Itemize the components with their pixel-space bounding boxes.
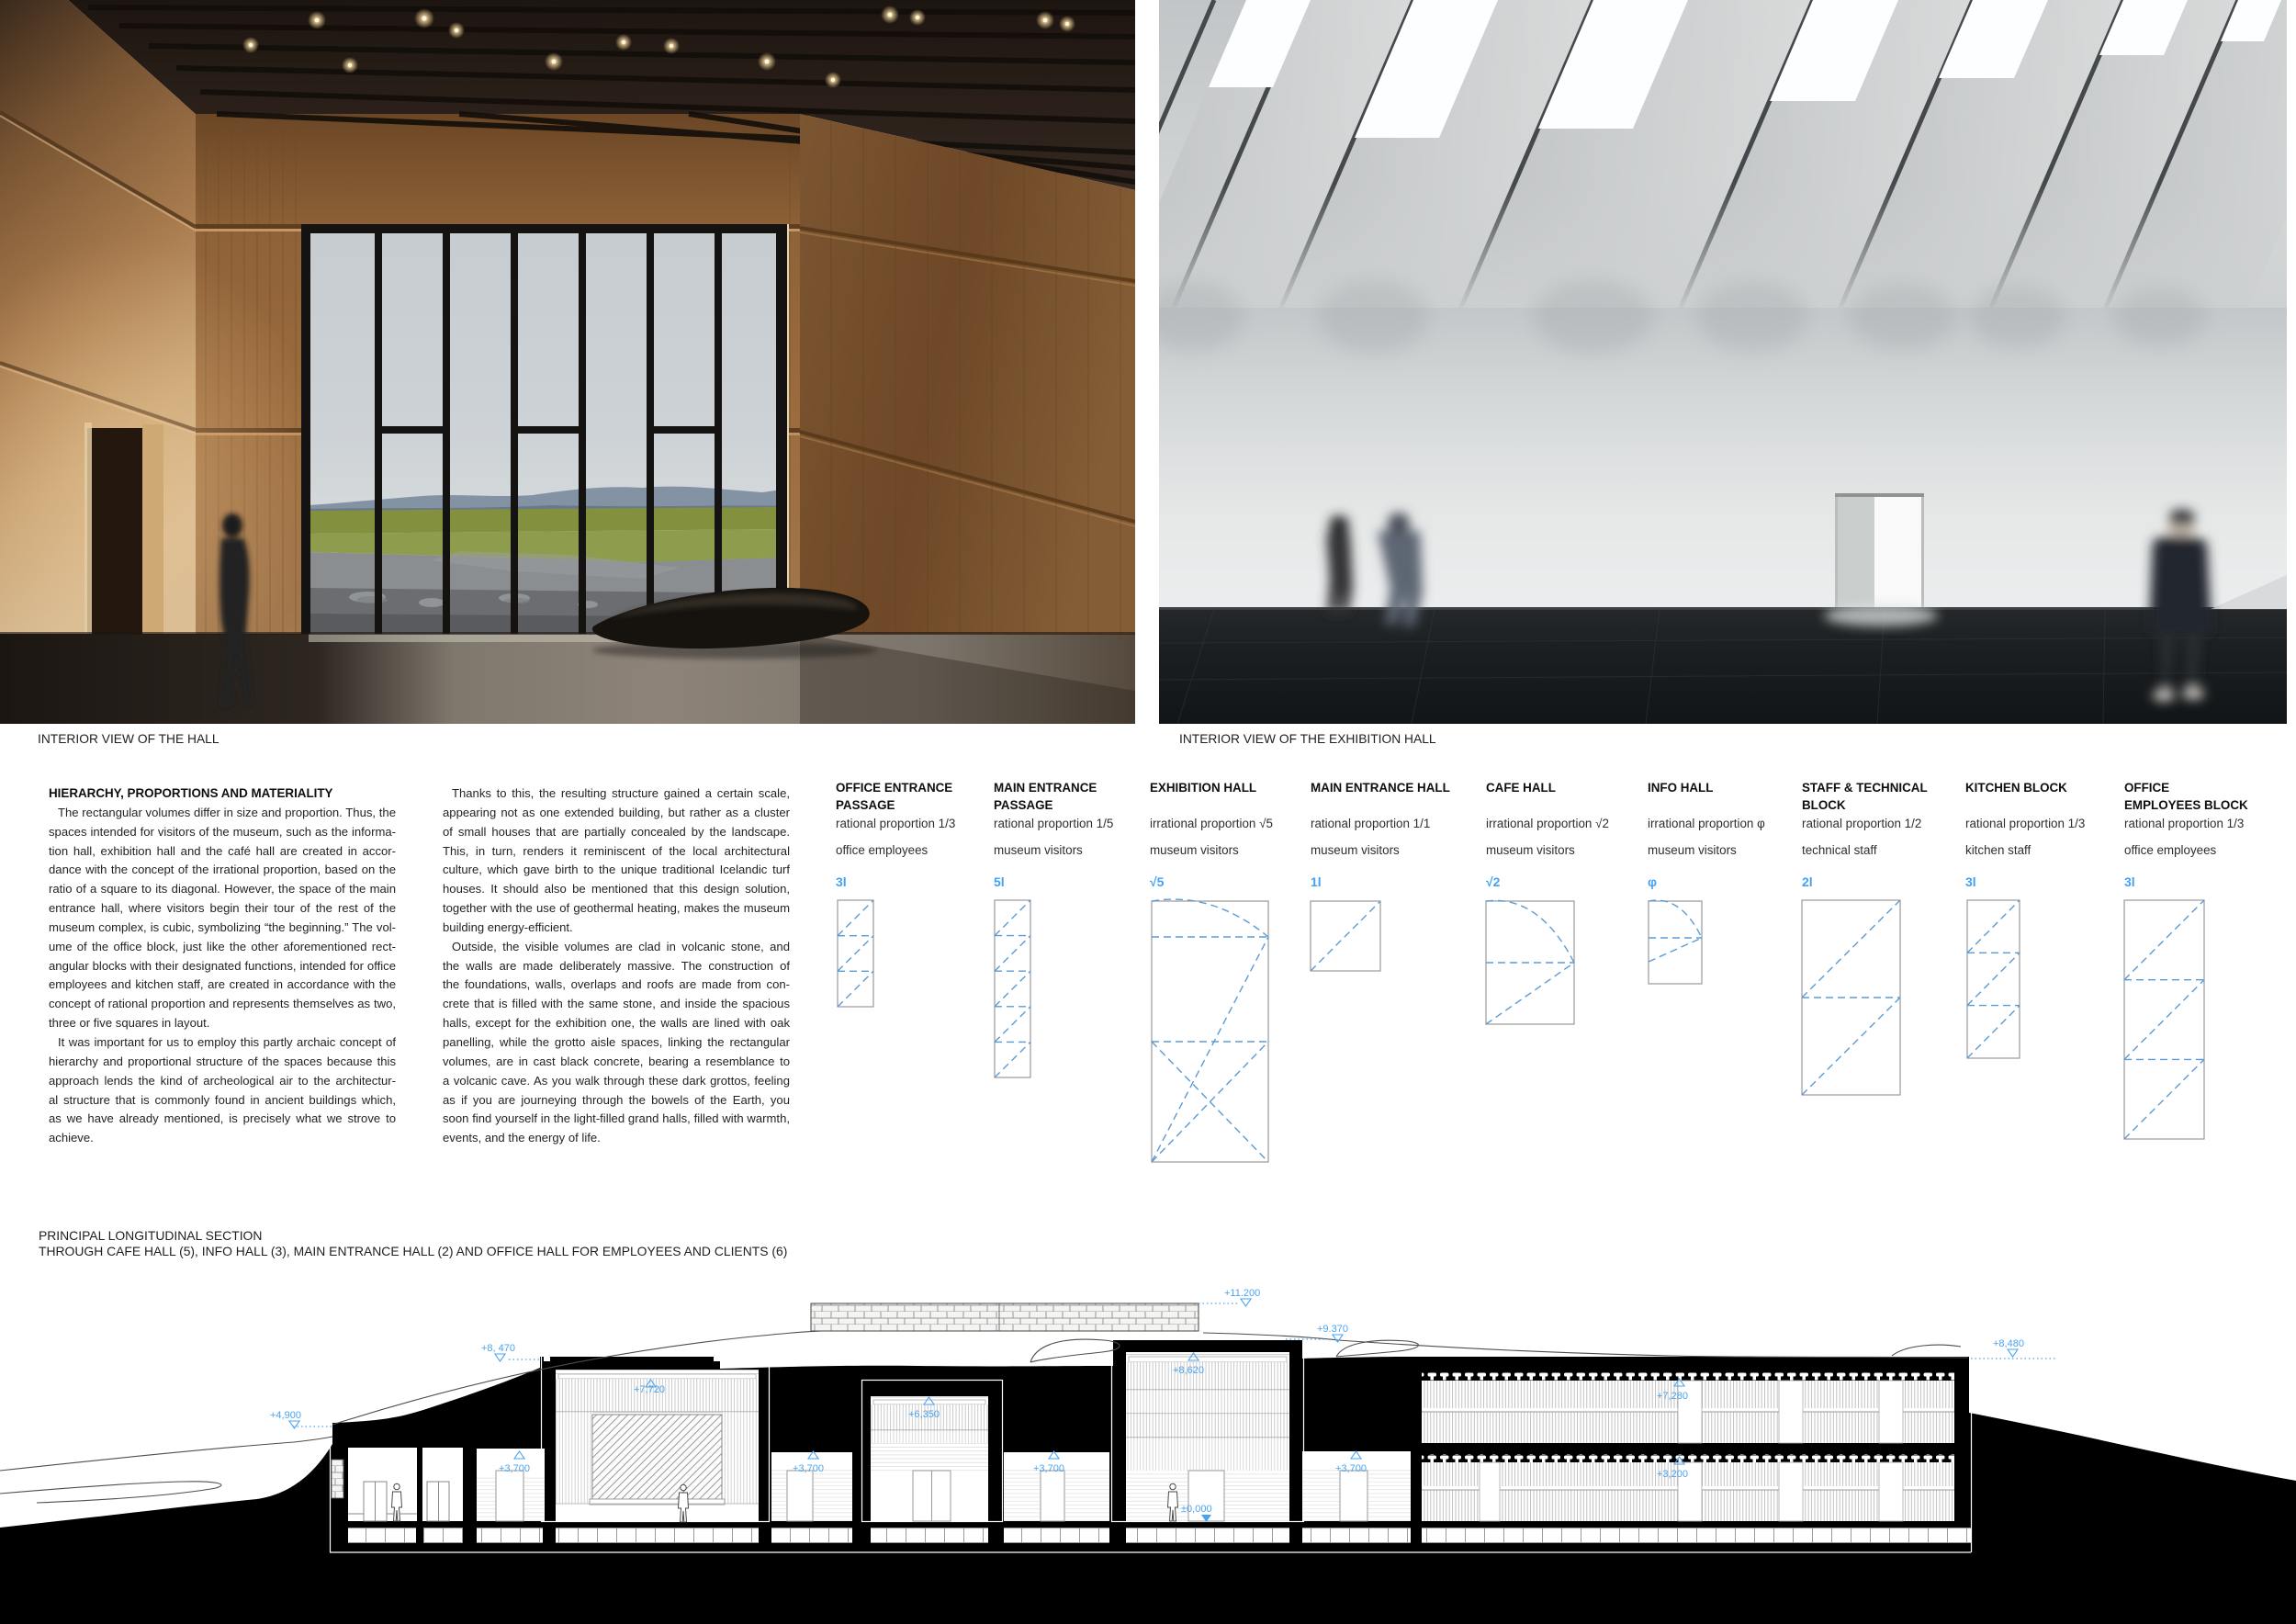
svg-text:+3,700: +3,700 bbox=[1335, 1463, 1367, 1474]
svg-text:+7,720: +7,720 bbox=[634, 1384, 665, 1395]
svg-text:+9.370: +9.370 bbox=[1317, 1324, 1348, 1335]
svg-text:+8, 470: +8, 470 bbox=[481, 1343, 515, 1354]
svg-text:+3,700: +3,700 bbox=[499, 1463, 530, 1474]
svg-text:±0,000: ±0,000 bbox=[1181, 1504, 1212, 1515]
svg-text:+11.200: +11.200 bbox=[1224, 1288, 1260, 1299]
svg-text:+8,620: +8,620 bbox=[1173, 1365, 1204, 1376]
svg-text:+3,700: +3,700 bbox=[793, 1463, 824, 1474]
svg-text:+8,480: +8,480 bbox=[1993, 1338, 2024, 1349]
svg-text:+3,200: +3,200 bbox=[1657, 1469, 1688, 1480]
svg-text:+7,280: +7,280 bbox=[1657, 1391, 1688, 1402]
svg-text:+4,900: +4,900 bbox=[270, 1410, 301, 1421]
svg-text:+6,350: +6,350 bbox=[908, 1409, 940, 1420]
svg-text:+3,700: +3,700 bbox=[1033, 1463, 1064, 1474]
